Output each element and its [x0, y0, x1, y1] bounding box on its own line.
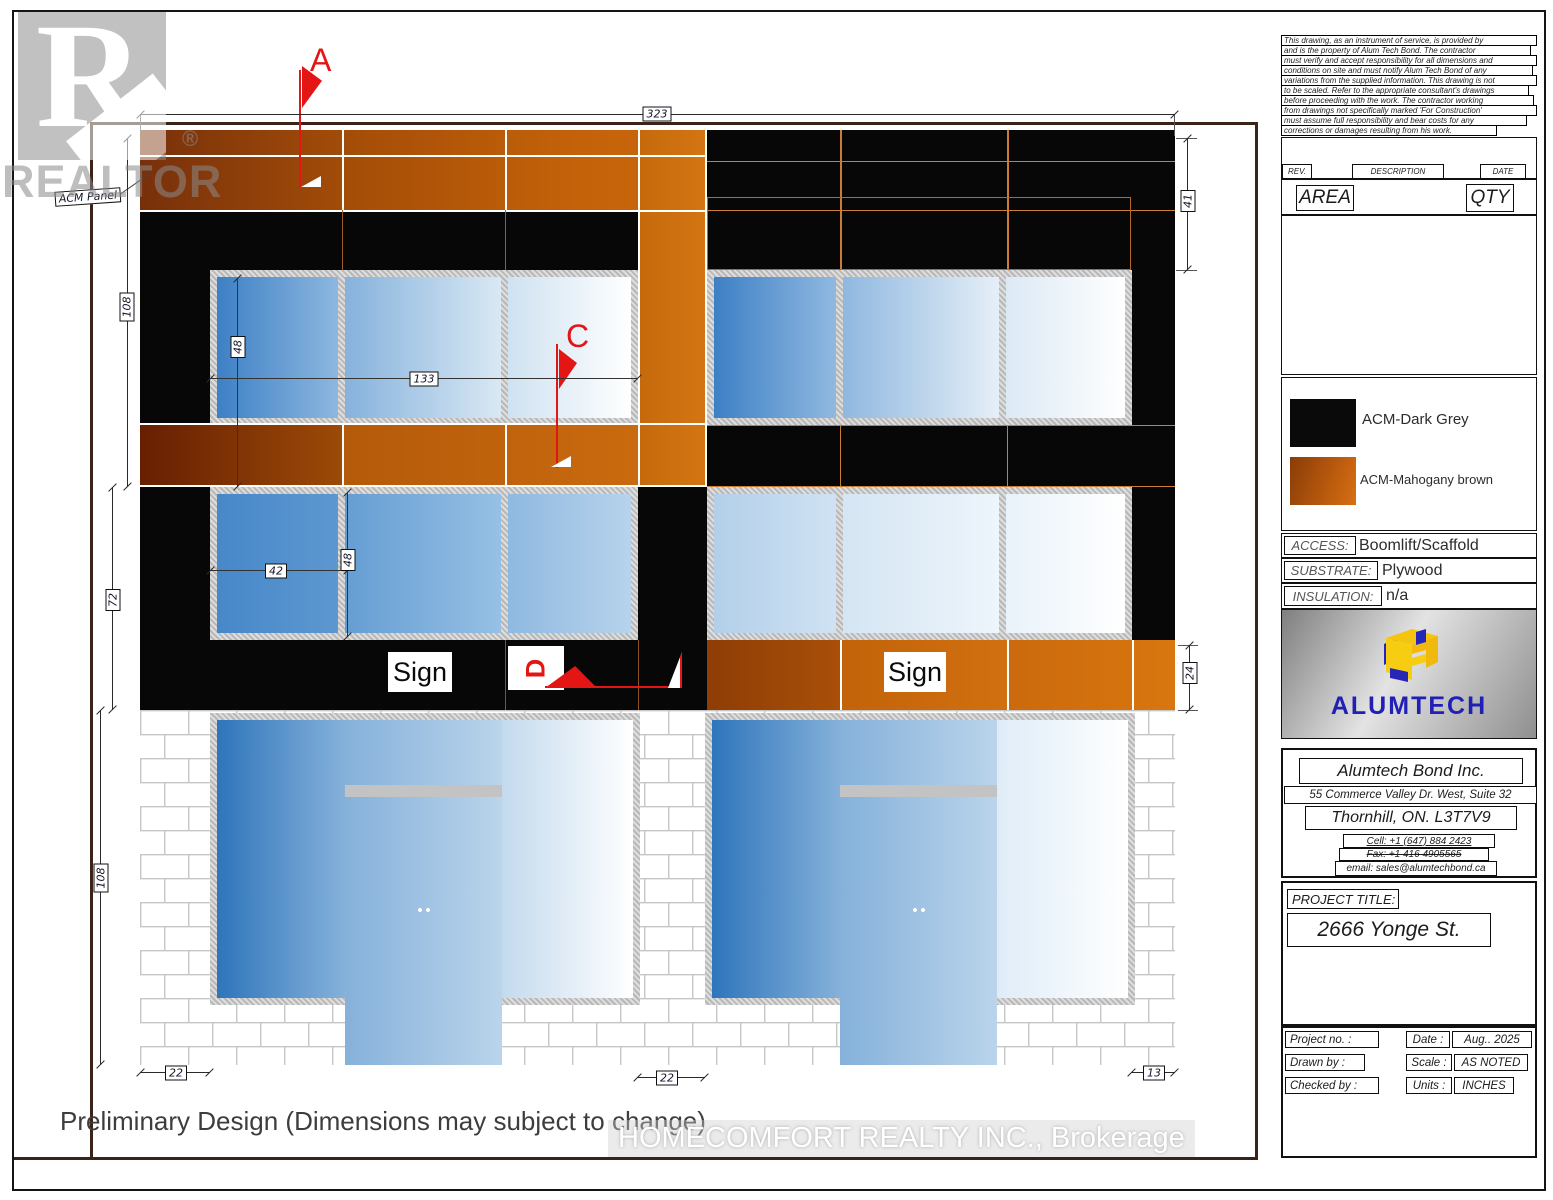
company-address-line2: Thornhill, ON. L3T7V9 — [1305, 806, 1517, 830]
date-value: Aug.. 2025 — [1452, 1031, 1532, 1048]
date-header: DATE — [1480, 164, 1526, 179]
door-handle-dots — [417, 908, 431, 913]
company-name: Alumtech Bond Inc. — [1299, 758, 1523, 784]
acm-panel-top-band-mahogany — [140, 130, 707, 210]
window-pane — [843, 277, 999, 418]
rev-header: REV. — [1282, 164, 1312, 179]
panel-joint-line-dark-orange — [505, 210, 506, 270]
sign-band-mahogany-3 — [1007, 640, 1175, 710]
panel-joint-line — [840, 640, 842, 710]
panel-joint-line — [342, 130, 344, 210]
dim-mid-left-height: 72 — [106, 589, 121, 611]
qty-header: QTY — [1466, 184, 1514, 212]
storefront-window — [712, 720, 840, 998]
panel-joint-line — [505, 425, 507, 487]
flag-a-pole — [299, 70, 301, 187]
panel-joint-line — [140, 485, 707, 487]
scale-label: Scale : — [1406, 1054, 1452, 1071]
window-pane — [345, 494, 501, 633]
dim-bottom-left: 22 — [165, 1066, 187, 1081]
sign-placeholder-left: Sign — [388, 652, 452, 692]
disclaimer-line: to be scaled. Refer to the appropriate c… — [1281, 85, 1529, 96]
accent-outline-rect — [707, 197, 1131, 270]
insulation-row: INSULATION: n/a — [1281, 583, 1537, 609]
revision-table: REV. DESCRIPTION DATE — [1281, 137, 1537, 179]
acm-panel-midband-dark — [707, 425, 1175, 487]
company-fax: Fax: +1 416 4905565 — [1339, 848, 1489, 861]
access-value: Boomlift/Scaffold — [1359, 537, 1479, 555]
dim-window2-width: 42 — [265, 564, 287, 579]
panel-joint-line-orange — [707, 161, 1175, 162]
legend-swatch-mahogany — [1290, 457, 1356, 505]
panel-joint-line — [140, 155, 707, 157]
panel-joint-line — [342, 425, 344, 487]
window-pane — [1006, 277, 1125, 418]
storefront-door — [345, 720, 502, 1065]
legend-swatch-dark-grey — [1290, 399, 1356, 447]
window-pane — [345, 277, 501, 418]
building-facade: Sign Sign D — [140, 130, 1175, 1065]
right-pillar-mid — [1132, 487, 1175, 640]
dim-line-window1-height — [237, 278, 238, 487]
flag-d-letter: D — [521, 658, 552, 678]
panel-joint-line — [1132, 640, 1134, 710]
acm-panel-band2-left — [140, 210, 638, 270]
dim-window1-height: 48 — [231, 336, 246, 358]
legend-label-mahogany: ACM-Mahogany brown — [1360, 472, 1493, 487]
panel-joint-line-dark-orange — [638, 640, 639, 710]
mahogany-column — [638, 130, 707, 487]
substrate-row: SUBSTRATE: Plywood — [1281, 558, 1537, 583]
disclaimer-block: This drawing, as an instrument of servic… — [1281, 36, 1537, 136]
project-title-box: PROJECT TITLE: 2666 Yonge St. — [1281, 881, 1537, 1026]
storefront-window — [502, 720, 633, 998]
door-handle-dots — [912, 908, 926, 913]
project-info-table: Project no. : Drawn by : Checked by : Da… — [1281, 1026, 1537, 1158]
brokerage-watermark: HOMECOMFORT REALTY INC., Brokerage — [608, 1120, 1195, 1157]
material-legend: ACM-Dark Grey ACM-Mahogany brown — [1281, 377, 1537, 531]
storefront-window — [997, 720, 1128, 998]
units-label: Units : — [1406, 1077, 1452, 1094]
date-label: Date : — [1406, 1031, 1450, 1048]
area-header: AREA — [1296, 185, 1354, 211]
flag-d-leader-line — [545, 686, 681, 688]
drawing-sheet: { "watermark": { "realtor_logo_letter": … — [0, 0, 1553, 1200]
scale-value: AS NOTED — [1454, 1054, 1528, 1071]
panel-joint-line — [1007, 640, 1009, 710]
window-pane — [508, 494, 631, 633]
acm-panel-midband-dark-mahogany — [140, 425, 342, 487]
sign-placeholder-right: Sign — [884, 652, 946, 692]
company-address-line1: 55 Commerce Valley Dr. West, Suite 32 — [1284, 786, 1537, 804]
panel-joint-line-dark-orange — [342, 210, 343, 270]
area-qty-rows — [1281, 215, 1537, 375]
substrate-label: SUBSTRATE: — [1284, 561, 1378, 580]
left-pillar-mid — [140, 487, 210, 640]
window-pane — [843, 494, 999, 633]
dim-bottom-mid: 22 — [656, 1071, 678, 1086]
drawn-by-label: Drawn by : — [1285, 1054, 1365, 1071]
alumtech-logo-icon — [1366, 628, 1452, 690]
storefront-door — [840, 720, 997, 1065]
storefront-window — [217, 720, 345, 998]
company-logo-box: ALUMTECH — [1281, 609, 1537, 739]
flag-c-letter: C — [566, 318, 589, 355]
panel-joint-line — [140, 210, 707, 212]
dim-window1-width: 133 — [410, 372, 439, 387]
alumtech-wordmark: ALUMTECH — [1331, 692, 1487, 721]
dim-bottom-right: 13 — [1143, 1066, 1165, 1081]
bottom-brown-rule — [14, 1157, 1258, 1160]
extension-line — [140, 114, 141, 132]
substrate-value: Plywood — [1382, 562, 1442, 580]
dim-upper-left-height: 108 — [120, 293, 135, 322]
panel-joint-line-orange — [707, 425, 1175, 426]
dim-lower-left-height: 108 — [94, 864, 109, 893]
panel-joint-line-orange — [840, 425, 841, 487]
flag-c-pole — [556, 344, 558, 468]
window-pane — [1006, 494, 1125, 633]
company-email: email: sales@alumtechbond.ca — [1335, 861, 1497, 876]
panel-joint-line — [505, 130, 507, 210]
door-transom-bar — [345, 785, 502, 797]
disclaimer-line: corrections or damages resulting from hi… — [1281, 125, 1497, 136]
checked-by-label: Checked by : — [1285, 1077, 1379, 1094]
units-value: INCHES — [1454, 1077, 1514, 1094]
dim-sign-band-height: 24 — [1183, 662, 1198, 684]
company-info-box: Alumtech Bond Inc. 55 Commerce Valley Dr… — [1281, 748, 1537, 878]
extension-line — [1174, 114, 1175, 136]
area-qty-header: AREA QTY — [1281, 179, 1537, 215]
access-label: ACCESS: — [1284, 536, 1356, 555]
window-pane — [714, 494, 836, 633]
project-title-label: PROJECT TITLE: — [1287, 889, 1399, 909]
panel-joint-line-dark-orange — [505, 640, 506, 710]
insulation-value: n/a — [1386, 587, 1408, 605]
project-no-label: Project no. : — [1285, 1031, 1379, 1048]
access-row: ACCESS: Boomlift/Scaffold — [1281, 533, 1537, 558]
sign-band-mahogany-1 — [707, 640, 840, 710]
panel-joint-line-orange — [1007, 425, 1008, 487]
panel-joint-line-orange — [707, 486, 1175, 487]
description-header: DESCRIPTION — [1352, 164, 1444, 179]
panel-joint-line — [140, 423, 707, 425]
dim-window2-height: 48 — [341, 549, 356, 571]
left-pillar-upper — [140, 270, 210, 425]
project-title-value: 2666 Yonge St. — [1287, 913, 1491, 947]
insulation-label: INSULATION: — [1284, 586, 1382, 606]
legend-label-dark-grey: ACM-Dark Grey — [1362, 411, 1469, 428]
company-cell: Cell: +1 (647) 884 2423 — [1343, 834, 1495, 848]
flag-a-letter: A — [310, 42, 331, 79]
dim-top-band-height: 41 — [1181, 190, 1196, 212]
center-pillar-mid — [638, 487, 707, 640]
window-pane — [714, 277, 836, 418]
right-pillar-upper — [1132, 270, 1175, 425]
door-transom-bar — [840, 785, 997, 797]
dim-overall-width: 323 — [643, 107, 672, 122]
